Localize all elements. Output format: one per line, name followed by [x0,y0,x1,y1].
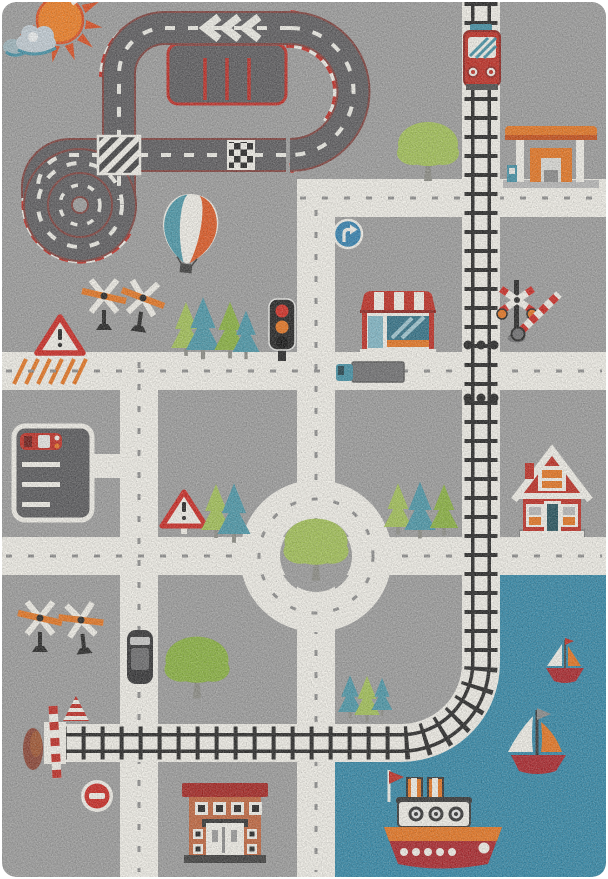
rug-texture-dark [2,2,606,877]
play-rug [0,0,608,879]
rug-product-photo [0,0,608,879]
